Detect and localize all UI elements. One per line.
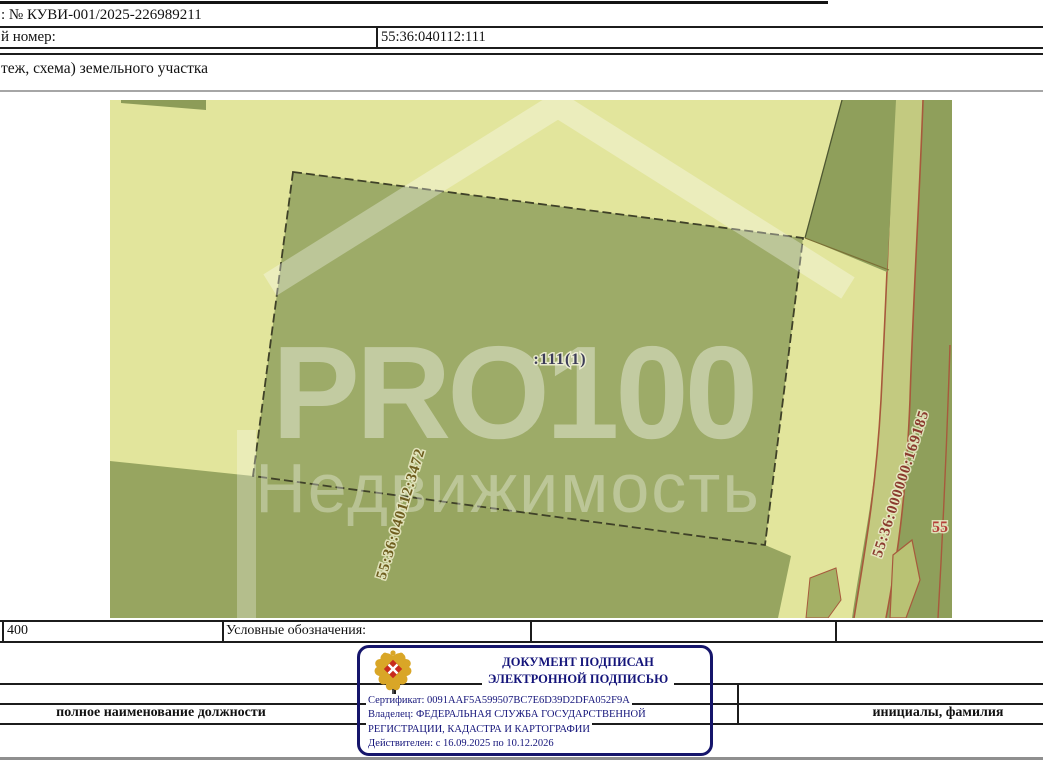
name-placeholder: инициалы, фамилия bbox=[833, 705, 1043, 721]
request-number: : № КУВИ-001/2025-226989211 bbox=[1, 7, 202, 24]
cell-divider bbox=[376, 26, 378, 48]
legend-label: Условные обозначения: bbox=[226, 623, 366, 639]
stamp-details: Сертификат: 0091AAF5A599507BC7E6D39D2DFA… bbox=[366, 694, 648, 751]
cell-divider bbox=[222, 620, 224, 643]
watermark-wall bbox=[237, 430, 256, 618]
watermark-text-pro100: PRO100 bbox=[272, 319, 754, 466]
scale-value: 400 bbox=[7, 623, 28, 639]
divider bbox=[0, 26, 1043, 28]
cadastral-number-label: й номер: bbox=[1, 29, 56, 46]
document-page: : № КУВИ-001/2025-226989211 й номер: 55:… bbox=[0, 0, 1043, 768]
electronic-signature-stamp: ДОКУМЕНТ ПОДПИСАН ЭЛЕКТРОННОЙ ПОДПИСЬЮ С… bbox=[357, 645, 713, 756]
bottom-divider bbox=[0, 757, 1043, 760]
divider bbox=[0, 620, 1043, 622]
cell-divider bbox=[835, 620, 837, 643]
stamp-title-line2: ЭЛЕКТРОННОЙ ПОДПИСЬЮ bbox=[482, 671, 674, 688]
cell-divider bbox=[2, 620, 4, 643]
cadastral-map-svg: PRO100 Недвижимость :111(1) 55:36:040112… bbox=[110, 100, 952, 618]
section-divider bbox=[0, 90, 1043, 92]
stamp-validity-line: Действителен: с 16.09.2025 по 10.12.2026 bbox=[366, 737, 556, 751]
watermark-text-nedvizhimost: Недвижимость bbox=[255, 449, 761, 527]
stamp-certificate-line: Сертификат: 0091AAF5A599507BC7E6D39D2DFA… bbox=[366, 694, 632, 708]
stamp-titles: ДОКУМЕНТ ПОДПИСАН ЭЛЕКТРОННОЙ ПОДПИСЬЮ bbox=[452, 654, 704, 688]
top-border-bar bbox=[0, 1, 828, 4]
section-title: теж, схема) земельного участка bbox=[1, 60, 208, 78]
edge-parcel-number: 55 bbox=[932, 519, 948, 536]
cell-divider bbox=[737, 683, 739, 725]
stamp-title-line1: ДОКУМЕНТ ПОДПИСАН bbox=[496, 654, 660, 671]
divider bbox=[0, 641, 1043, 643]
cell-divider bbox=[530, 620, 532, 643]
cadastral-map: PRO100 Недвижимость :111(1) 55:36:040112… bbox=[110, 100, 952, 618]
stamp-owner-line2: РЕГИСТРАЦИИ, КАДАСТРА И КАРТОГРАФИИ bbox=[366, 723, 592, 737]
parcel-number-label: :111(1) bbox=[533, 351, 586, 368]
divider bbox=[0, 53, 1043, 55]
divider bbox=[0, 47, 1043, 49]
cadastral-number-value: 55:36:040112:111 bbox=[381, 29, 486, 46]
stamp-owner-line1: Владелец: ФЕДЕРАЛЬНАЯ СЛУЖБА ГОСУДАРСТВЕ… bbox=[366, 708, 648, 722]
position-placeholder: полное наименование должности bbox=[0, 705, 322, 721]
